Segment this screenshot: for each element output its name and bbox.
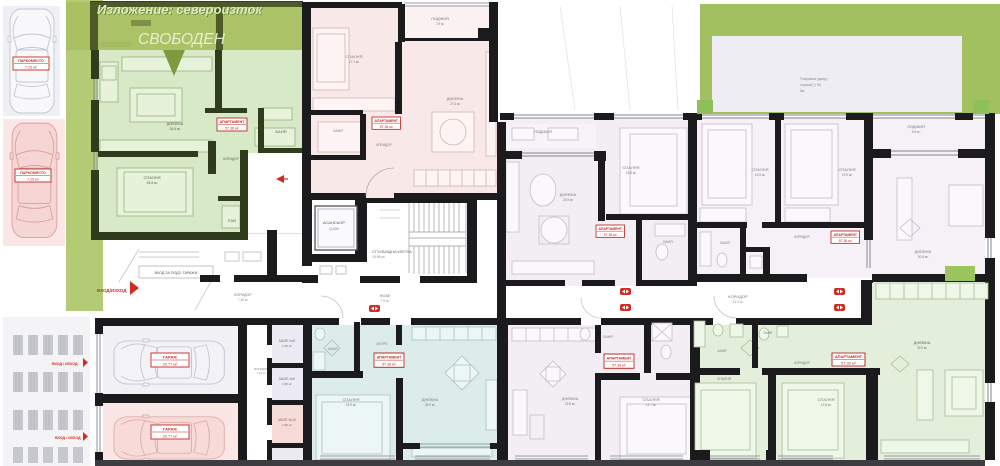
svg-text:12.8 м²: 12.8 м² (821, 403, 831, 407)
svg-text:тераса(?) 96: тераса(?) 96 (800, 83, 821, 87)
svg-text:Покривна (двор): Покривна (двор) (800, 77, 827, 81)
svg-text:31.9 м²: 31.9 м² (732, 300, 744, 304)
svg-text:БАНЯ: БАНЯ (764, 331, 773, 335)
svg-text:15.6 м²: 15.6 м² (626, 171, 636, 175)
svg-text:БАНЯ: БАНЯ (333, 129, 343, 133)
svg-text:ЛОДЖИЯ: ЛОДЖИЯ (534, 129, 552, 134)
svg-text:ДНЕВНА: ДНЕВНА (914, 340, 931, 345)
svg-text:7.9 м²: 7.9 м² (436, 22, 445, 26)
svg-text:23.9 м²: 23.9 м² (563, 198, 573, 202)
svg-text:17.1 м²: 17.1 м² (349, 60, 359, 64)
svg-text:2.95 м²: 2.95 м² (282, 344, 292, 348)
svg-text:СПАЛНЯ: СПАЛНЯ (623, 165, 640, 170)
svg-text:7.36 м²: 7.36 м² (238, 298, 248, 302)
svg-text:СПАЛНЯ: СПАЛНЯ (818, 397, 835, 402)
svg-text:ВХОД/ИЗХОД: ВХОД/ИЗХОД (97, 288, 127, 293)
svg-text:КОРИДОР: КОРИДОР (794, 235, 809, 239)
svg-text:БАНЯ: БАНЯ (720, 241, 730, 245)
svg-text:СПАЛНЯ: СПАЛНЯ (717, 377, 732, 381)
svg-text:ВХОД / ИЗХОД: ВХОД / ИЗХОД (52, 362, 78, 366)
svg-text:28.0 м²: 28.0 м² (425, 403, 435, 407)
svg-text:БАНЯ: БАНЯ (328, 347, 338, 351)
svg-text:СПАЛНЯ: СПАЛНЯ (346, 54, 363, 59)
svg-text:ВХОД ЗА ПОДЗ. ГАРАЖИ: ВХОД ЗА ПОДЗ. ГАРАЖИ (155, 271, 198, 275)
svg-text:АНТРЕ: АНТРЕ (376, 342, 388, 346)
svg-text:Q-630: Q-630 (329, 227, 339, 231)
svg-text:15.9 м²: 15.9 м² (346, 403, 356, 407)
svg-text:КОРИДОР: КОРИДОР (794, 361, 809, 365)
svg-text:19.95 м²: 19.95 м² (372, 255, 386, 259)
svg-text:22.8 м²: 22.8 м² (565, 402, 575, 406)
svg-text:КОРИДОР: КОРИДОР (234, 293, 252, 297)
svg-text:2.95 м²: 2.95 м² (282, 423, 292, 427)
svg-text:ВХОД / ИЗХОД: ВХОД / ИЗХОД (55, 436, 81, 440)
svg-text:27.4 м²: 27.4 м² (450, 102, 460, 106)
svg-text:13.9 м²: 13.9 м² (842, 173, 852, 177)
svg-text:ДНЕВНА: ДНЕВНА (560, 192, 577, 197)
svg-text:БАНЯ: БАНЯ (276, 129, 287, 134)
svg-text:СПАЛНЯ: СПАЛНЯ (839, 167, 856, 172)
svg-text:26.6 м²: 26.6 м² (169, 127, 181, 131)
svg-text:БАНЯ: БАНЯ (663, 240, 673, 244)
svg-text:ДНЕВНА: ДНЕВНА (447, 96, 464, 101)
svg-text:ДНЕВНА: ДНЕВНА (915, 249, 932, 254)
svg-text:АСАНСЬОР: АСАНСЬОР (323, 220, 345, 225)
svg-text:7.36 м²: 7.36 м² (256, 371, 265, 375)
svg-text:ТОАЛ: ТОАЛ (228, 219, 237, 223)
svg-text:13.9 м²: 13.9 м² (755, 173, 765, 177)
svg-text:8м: 8м (800, 89, 805, 93)
svg-text:КОРИДОР: КОРИДОР (728, 294, 748, 299)
svg-text:ДНЕВНА: ДНЕВНА (422, 397, 439, 402)
svg-text:ДНЕВНА: ДНЕВНА (167, 121, 184, 126)
svg-text:СВОБОДЕН: СВОБОДЕН (138, 31, 226, 48)
svg-text:7.8 м²: 7.8 м² (381, 299, 390, 303)
svg-text:СПАЛНЯ: СПАЛНЯ (752, 167, 769, 172)
svg-text:9.5 м²: 9.5 м² (912, 130, 921, 134)
svg-text:МАЗЕ №10: МАЗЕ №10 (278, 418, 296, 422)
svg-text:ДНЕВНА: ДНЕВНА (562, 396, 579, 401)
svg-text:СТЪЛБИЩНА КЛЕТКА: СТЪЛБИЩНА КЛЕТКА (372, 250, 412, 254)
svg-text:Изложение: североизток: Изложение: североизток (97, 2, 263, 17)
svg-text:КОРИДОР: КОРИДОР (223, 157, 238, 161)
svg-text:МАЗЕ №9: МАЗЕ №9 (279, 377, 295, 381)
svg-text:МАЗЕ №8: МАЗЕ №8 (279, 339, 295, 343)
svg-text:БАНЯ: БАНЯ (603, 335, 613, 339)
svg-text:2.95 м²: 2.95 м² (282, 382, 292, 386)
svg-text:СПАЛНЯ: СПАЛНЯ (343, 397, 360, 402)
svg-text:КОРИДОР: КОРИДОР (376, 143, 391, 147)
svg-text:33.9 м²: 33.9 м² (917, 346, 927, 350)
svg-text:ЛОДЖИЯ: ЛОДЖИЯ (907, 124, 925, 129)
svg-text:ЛОДЖИЯ: ЛОДЖИЯ (431, 16, 449, 21)
svg-text:30.8 м²: 30.8 м² (918, 255, 928, 259)
svg-text:СПАЛНЯ: СПАЛНЯ (643, 397, 660, 402)
svg-text:СПАЛНЯ: СПАЛНЯ (144, 175, 161, 180)
svg-text:15.8 м²: 15.8 м² (146, 181, 158, 185)
svg-text:14.7 м²: 14.7 м² (646, 403, 656, 407)
svg-text:ФОАЕ: ФОАЕ (380, 294, 391, 298)
svg-text:БАНЯ: БАНЯ (718, 349, 727, 353)
